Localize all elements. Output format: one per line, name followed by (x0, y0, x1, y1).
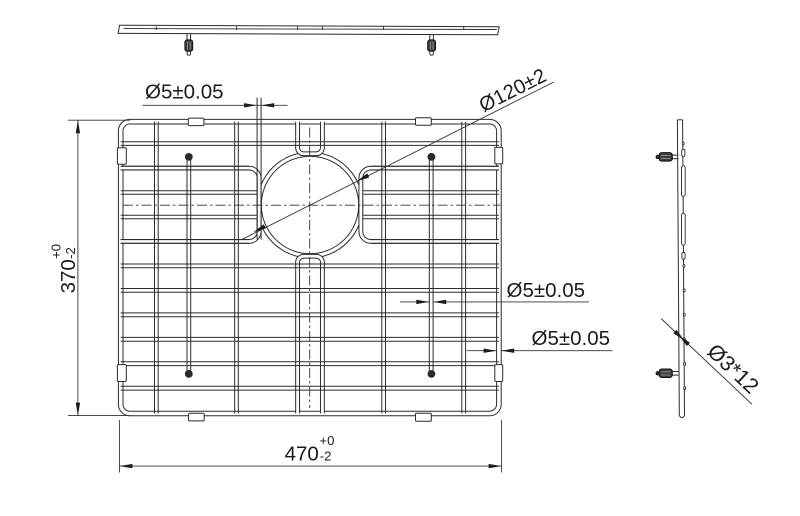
svg-text:370: 370 (57, 259, 80, 293)
svg-text:Ø5±0.05: Ø5±0.05 (507, 279, 586, 302)
svg-text:+0: +0 (319, 433, 334, 448)
svg-text:470: 470 (285, 442, 319, 465)
svg-text:+0: +0 (48, 244, 63, 259)
svg-text:-2: -2 (63, 247, 78, 259)
svg-text:-2: -2 (320, 448, 332, 463)
svg-text:Ø5±0.05: Ø5±0.05 (145, 81, 224, 104)
svg-text:Ø5±0.05: Ø5±0.05 (532, 327, 611, 350)
